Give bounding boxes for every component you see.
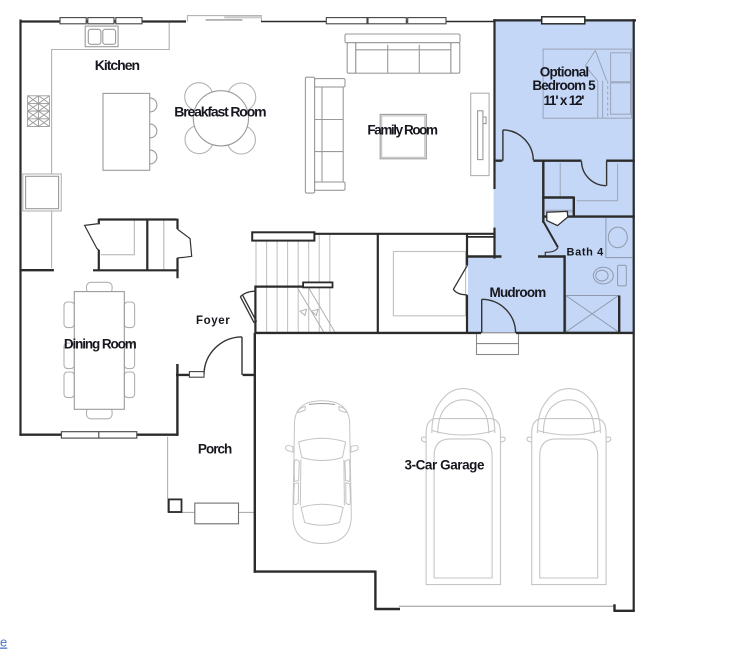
- svg-text:Mudroom: Mudroom: [490, 285, 547, 300]
- svg-text:Porch: Porch: [198, 442, 232, 457]
- svg-text:Foyer: Foyer: [196, 315, 230, 327]
- svg-text:Bedroom 5: Bedroom 5: [532, 78, 596, 93]
- svg-text:Kitchen: Kitchen: [95, 57, 140, 73]
- svg-text:Dining Room: Dining Room: [64, 336, 137, 351]
- svg-text:e: e: [0, 635, 7, 650]
- svg-text:Bath 4: Bath 4: [567, 247, 605, 259]
- svg-text:3-Car Garage: 3-Car Garage: [405, 458, 485, 473]
- svg-text:Breakfast Room: Breakfast Room: [174, 104, 266, 120]
- svg-text:Family Room: Family Room: [367, 123, 438, 138]
- svg-text:11' x 12': 11' x 12': [544, 93, 585, 108]
